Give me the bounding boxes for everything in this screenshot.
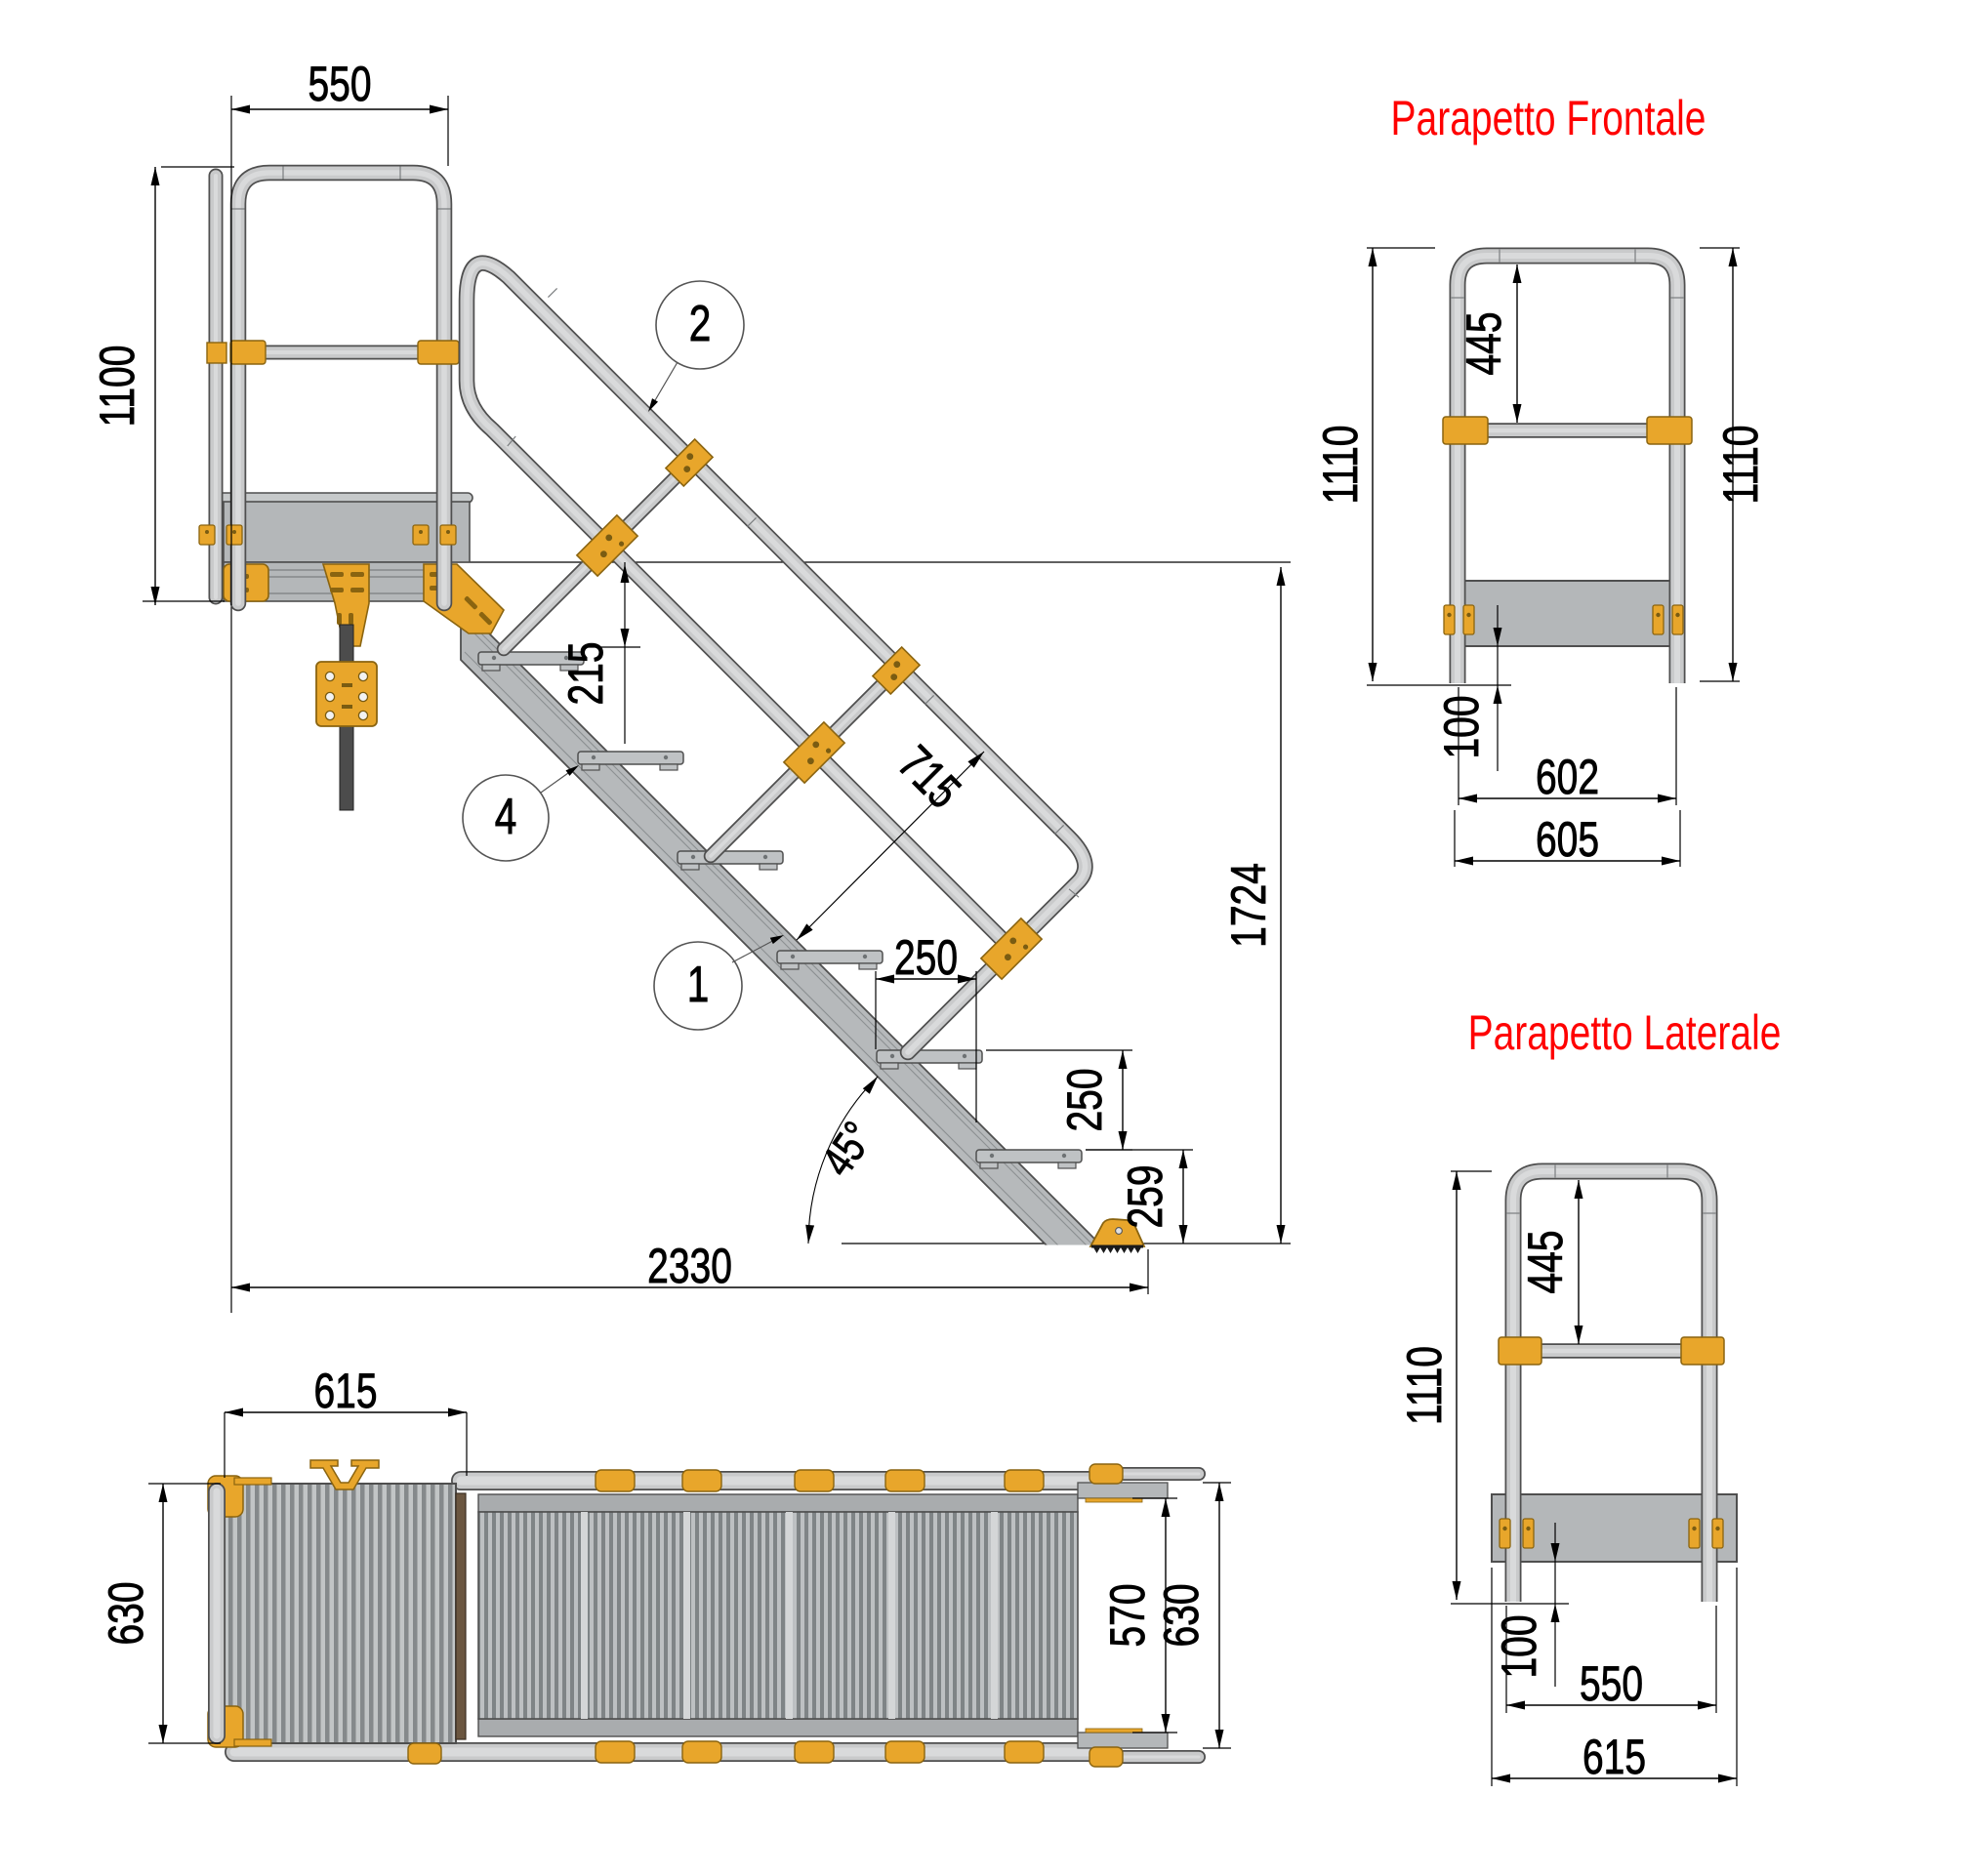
svg-text:605: 605	[1536, 811, 1599, 867]
svg-text:2: 2	[689, 295, 712, 351]
svg-text:1110: 1110	[1312, 426, 1368, 505]
svg-text:1724: 1724	[1220, 863, 1276, 948]
svg-text:445: 445	[1517, 1230, 1573, 1293]
svg-text:615: 615	[313, 1363, 377, 1418]
svg-text:630: 630	[98, 1581, 153, 1645]
svg-text:250: 250	[1056, 1068, 1112, 1131]
svg-text:Parapetto Frontale: Parapetto Frontale	[1391, 90, 1706, 145]
svg-text:1110: 1110	[1712, 426, 1768, 505]
svg-text:Parapetto Laterale: Parapetto Laterale	[1468, 1004, 1782, 1060]
svg-text:550: 550	[1580, 1655, 1643, 1711]
svg-text:1: 1	[687, 956, 710, 1012]
svg-text:570: 570	[1099, 1583, 1155, 1647]
svg-text:550: 550	[308, 56, 371, 111]
svg-text:259: 259	[1117, 1164, 1172, 1228]
svg-text:100: 100	[1433, 695, 1489, 758]
svg-text:1100: 1100	[89, 346, 144, 428]
svg-text:2330: 2330	[647, 1238, 732, 1293]
svg-text:1110: 1110	[1396, 1346, 1452, 1425]
svg-text:4: 4	[495, 788, 517, 844]
svg-text:100: 100	[1491, 1614, 1546, 1678]
svg-text:445: 445	[1456, 311, 1511, 375]
svg-text:215: 215	[557, 641, 613, 705]
svg-text:250: 250	[894, 929, 958, 985]
svg-text:630: 630	[1153, 1583, 1209, 1647]
svg-text:602: 602	[1536, 749, 1599, 804]
svg-text:615: 615	[1583, 1729, 1646, 1784]
